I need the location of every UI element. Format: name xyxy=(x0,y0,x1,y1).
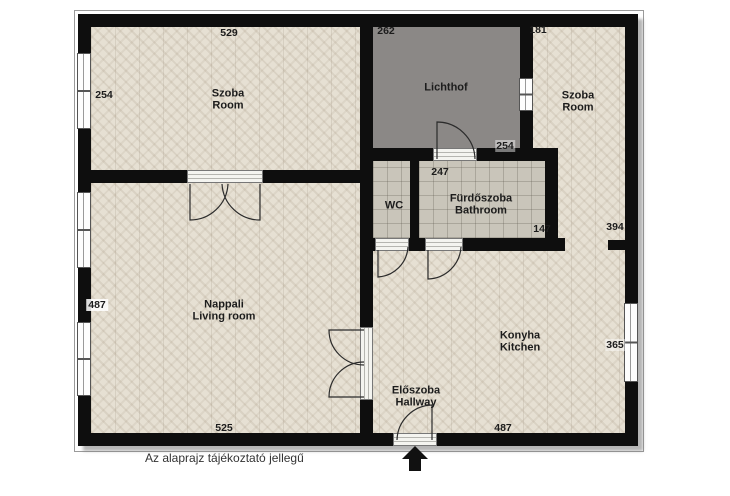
window xyxy=(77,322,91,396)
room-label-bathroom: Fürdőszoba Bathroom xyxy=(450,194,512,217)
dim-szoba-right-width: 181 xyxy=(529,24,547,36)
dim-bathroom-width: 247 xyxy=(431,166,449,178)
dim-szoba-left-height: 254 xyxy=(95,89,113,101)
door-frame-double-hall xyxy=(360,327,373,400)
dim-lichthof-height: 254 xyxy=(495,140,515,152)
wall xyxy=(263,170,373,183)
wall xyxy=(78,433,638,446)
room-label-wc: WC xyxy=(385,200,403,212)
window xyxy=(519,78,533,111)
wall xyxy=(477,148,558,161)
dim-lichthof-width: 262 xyxy=(377,25,395,37)
wall xyxy=(409,238,425,251)
wall xyxy=(78,14,638,27)
wall xyxy=(91,170,187,183)
room-label-kitchen: Konyha Kitchen xyxy=(500,331,540,354)
door-frame-bathroom xyxy=(425,238,463,251)
room-label-hallway: Előszoba Hallway xyxy=(392,386,440,409)
window xyxy=(77,53,91,129)
door-frame-wc xyxy=(375,238,409,251)
dim-kitchen-height: 365 xyxy=(605,339,625,351)
room-label-szoba-right: Szoba Room xyxy=(562,91,594,114)
wall xyxy=(360,238,375,251)
door-frame-lichthof xyxy=(433,148,477,161)
door-frame-entrance xyxy=(393,433,437,446)
room-label-lichthof: Lichthof xyxy=(424,82,467,94)
room-label-living: Nappali Living room xyxy=(193,300,256,323)
wall xyxy=(410,161,419,238)
wall xyxy=(608,240,625,250)
door-frame-double-living xyxy=(187,170,263,183)
dim-szoba-left-width: 529 xyxy=(220,27,238,39)
dim-szoba-right-height: 394 xyxy=(606,221,624,233)
disclaimer-note: Az alaprajz tájékoztató jellegű xyxy=(145,451,304,465)
dim-living-width: 525 xyxy=(215,422,233,434)
floor-plan: Szoba Room Lichthof Szoba Room WC Fürdős… xyxy=(0,0,730,496)
window xyxy=(77,192,91,268)
room-label-szoba-left: Szoba Room xyxy=(212,89,244,112)
window xyxy=(624,303,638,382)
wall xyxy=(360,400,373,433)
wall xyxy=(463,238,565,251)
wall xyxy=(373,148,433,161)
dim-living-height: 487 xyxy=(86,299,108,311)
dim-kitchen-width: 487 xyxy=(494,422,512,434)
dim-bathroom-height: 147 xyxy=(533,223,551,235)
